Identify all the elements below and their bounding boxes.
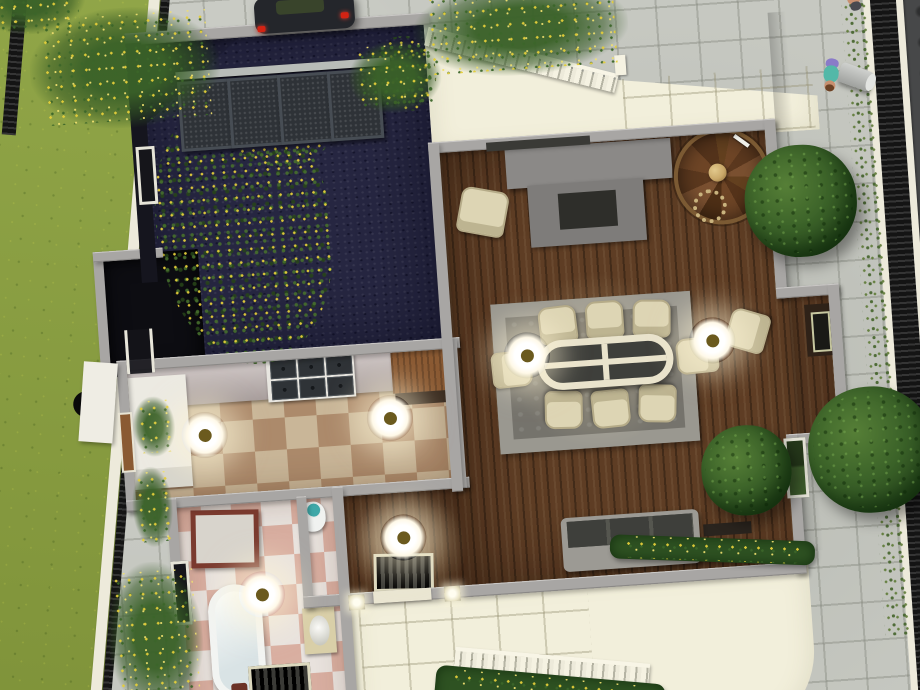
bathroom-sink[interactable]: [302, 606, 337, 654]
stove-burner: [270, 359, 297, 380]
dining-table[interactable]: [536, 332, 675, 391]
car-taillight-right: [341, 12, 349, 19]
shrub-left-wall-a: [131, 395, 177, 458]
dining-chair[interactable]: [584, 300, 625, 341]
dining-chair[interactable]: [633, 300, 671, 338]
dining-chair[interactable]: [590, 388, 632, 430]
sim-hair: [825, 84, 835, 92]
sim-walking[interactable]: [818, 57, 844, 97]
dining-chair[interactable]: [544, 391, 583, 430]
roof-wall-window[interactable]: [135, 146, 158, 205]
shrub-left-wall-b: [130, 466, 175, 549]
shower-cabinet[interactable]: [190, 509, 259, 568]
shrub-bottom-left: [103, 559, 208, 690]
stove-burner: [325, 355, 352, 376]
porch-sconce-left[interactable]: [348, 594, 365, 610]
tub-faucet: [231, 683, 248, 690]
world-scene: [0, 0, 920, 690]
solar-panel-3[interactable]: [277, 71, 335, 145]
sim-bottoms: [849, 0, 862, 12]
unlit-room-door[interactable]: [124, 328, 155, 374]
car-taillight-left: [257, 26, 265, 33]
car-windshield: [276, 0, 325, 15]
stove-burner: [299, 378, 326, 399]
solar-panel-2[interactable]: [227, 75, 285, 149]
stove-burner: [327, 376, 354, 397]
chimney: [78, 361, 117, 443]
game-viewport: [0, 0, 920, 690]
media-unit-screen[interactable]: [558, 190, 618, 230]
armchair[interactable]: [455, 185, 510, 239]
bathroom-floor-grate[interactable]: [248, 662, 312, 690]
dining-chair[interactable]: [638, 384, 677, 423]
porch-sconce-right[interactable]: [444, 586, 461, 602]
stove-burner: [298, 357, 325, 378]
stove-burner: [271, 379, 298, 400]
